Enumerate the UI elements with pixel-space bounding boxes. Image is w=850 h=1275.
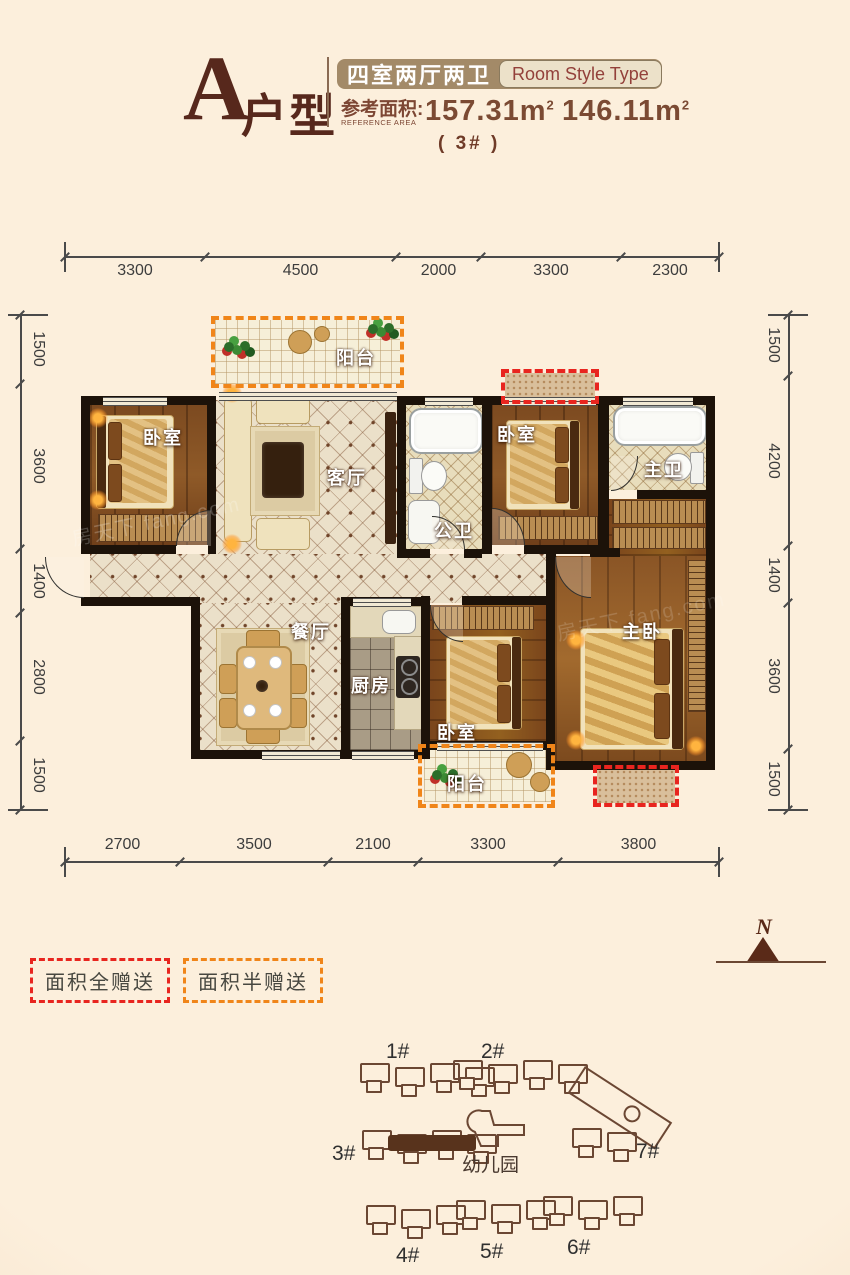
bed-master — [580, 628, 684, 750]
label-living: 客厅 — [327, 464, 367, 490]
dim-bottom-3: 3300 — [418, 836, 558, 854]
legend-half-gift: 面积半赠送 — [183, 958, 323, 1003]
label-kitchen: 厨房 — [351, 672, 391, 698]
bay-bottom-gift-box — [593, 765, 679, 807]
site-label-kindergarten: 幼儿园 — [462, 1150, 519, 1177]
dim-bottom-1: 3500 — [180, 836, 328, 854]
dim-top-3: 3300 — [481, 262, 621, 280]
plate — [243, 656, 256, 669]
lamp-glow — [566, 730, 586, 750]
window — [352, 751, 414, 760]
cooktop — [396, 656, 420, 698]
dim-top-1: 4500 — [205, 262, 396, 280]
label-bedroom-b: 卧室 — [437, 719, 477, 745]
room-style-en: Room Style Type — [499, 60, 662, 88]
reference-area-label: 参考面积: REFERENCE AREA — [341, 100, 423, 127]
closet-shelf — [612, 527, 706, 549]
site-label-4: 4# — [396, 1244, 419, 1268]
sofa-seat-bottom — [256, 518, 310, 550]
label-bedroom-tm: 卧室 — [497, 421, 537, 447]
dim-right-4: 1500 — [764, 749, 782, 809]
building-note: ( 3# ) — [438, 133, 500, 155]
site-label-6: 6# — [567, 1236, 590, 1260]
window — [623, 397, 693, 406]
dim-top-4: 2300 — [621, 262, 719, 280]
wardrobe-master — [688, 560, 706, 712]
window — [425, 397, 473, 406]
dim-right-3: 3600 — [764, 646, 782, 706]
building-7 — [572, 1128, 637, 1152]
dining-chair — [219, 698, 237, 728]
tv-stand — [385, 412, 396, 544]
plate — [269, 656, 282, 669]
dim-left-3: 2800 — [29, 647, 47, 707]
dim-left-4: 1500 — [29, 745, 47, 805]
dim-bottom-2: 2100 — [328, 836, 418, 854]
building-5 — [456, 1200, 556, 1224]
dim-top-2: 2000 — [396, 262, 481, 280]
dim-left-0: 1500 — [29, 319, 47, 379]
kitchen-sliding-door — [353, 598, 411, 607]
toilet-master — [690, 452, 704, 484]
kitchen-sink — [382, 610, 416, 634]
entry-door — [45, 557, 84, 598]
plate — [269, 704, 282, 717]
lamp-glow — [88, 408, 108, 428]
unit-type-suffix: 户型 — [241, 80, 337, 146]
north-baseline — [716, 961, 826, 963]
label-bedroom-tl: 卧室 — [143, 424, 183, 450]
bed-b — [446, 636, 522, 730]
bay-top-gift-box — [501, 369, 599, 404]
balcony-door-top — [219, 392, 397, 401]
dim-top-0: 3300 — [65, 262, 205, 280]
annex-circle — [620, 1102, 644, 1126]
bathtub-public — [409, 408, 483, 454]
lamp-glow — [686, 736, 706, 756]
sofa-long — [224, 398, 252, 542]
dim-right-0: 1500 — [764, 315, 782, 375]
plate — [243, 704, 256, 717]
lamp-glow — [222, 534, 242, 554]
dim-right-1: 4200 — [764, 431, 782, 491]
room-style-badge: 四室两厅两卫 Room Style Type — [337, 59, 662, 89]
north-arrow-icon — [746, 937, 780, 963]
coffee-table — [262, 442, 304, 498]
building-6 — [543, 1196, 643, 1220]
room-style-cn: 四室两厅两卫 — [347, 58, 491, 90]
site-label-5: 5# — [480, 1240, 503, 1264]
unit-type-letter: A — [183, 42, 249, 134]
floorplan-page: A 户型 四室两厅两卫 Room Style Type 参考面积: REFERE… — [0, 0, 850, 1275]
center-dish — [256, 680, 268, 692]
site-label-7: 7# — [636, 1140, 659, 1164]
site-label-1: 1# — [386, 1040, 409, 1064]
area-value-2: 146.11m2 — [562, 95, 690, 128]
dim-bottom-0: 2700 — [65, 836, 180, 854]
dim-left-1: 3600 — [29, 436, 47, 496]
label-balcony-top: 阳台 — [336, 344, 376, 370]
label-balcony-bottom: 阳台 — [447, 770, 487, 796]
label-dining: 餐厅 — [291, 618, 331, 644]
dining-chair — [219, 664, 237, 694]
dim-bottom-4: 3800 — [558, 836, 719, 854]
toilet-bowl — [421, 461, 447, 491]
building-3-highlight — [388, 1135, 476, 1151]
lamp-glow — [88, 490, 108, 510]
dim-right-2: 1400 — [764, 545, 782, 605]
building-2 — [453, 1060, 588, 1084]
legend-full-gift: 面积全赠送 — [30, 958, 170, 1003]
header-divider — [327, 57, 329, 127]
building-4 — [366, 1205, 466, 1229]
closet-shelf — [612, 500, 706, 524]
label-public-bath: 公卫 — [434, 517, 474, 543]
site-label-3: 3# — [332, 1142, 355, 1166]
window — [262, 751, 340, 760]
window — [103, 397, 167, 406]
area-value-1: 157.31m2 — [425, 95, 555, 128]
page-header: A 户型 四室两厅两卫 Room Style Type 参考面积: REFERE… — [0, 0, 850, 170]
label-master-bath: 主卫 — [644, 456, 684, 482]
bathtub-master — [613, 406, 707, 446]
